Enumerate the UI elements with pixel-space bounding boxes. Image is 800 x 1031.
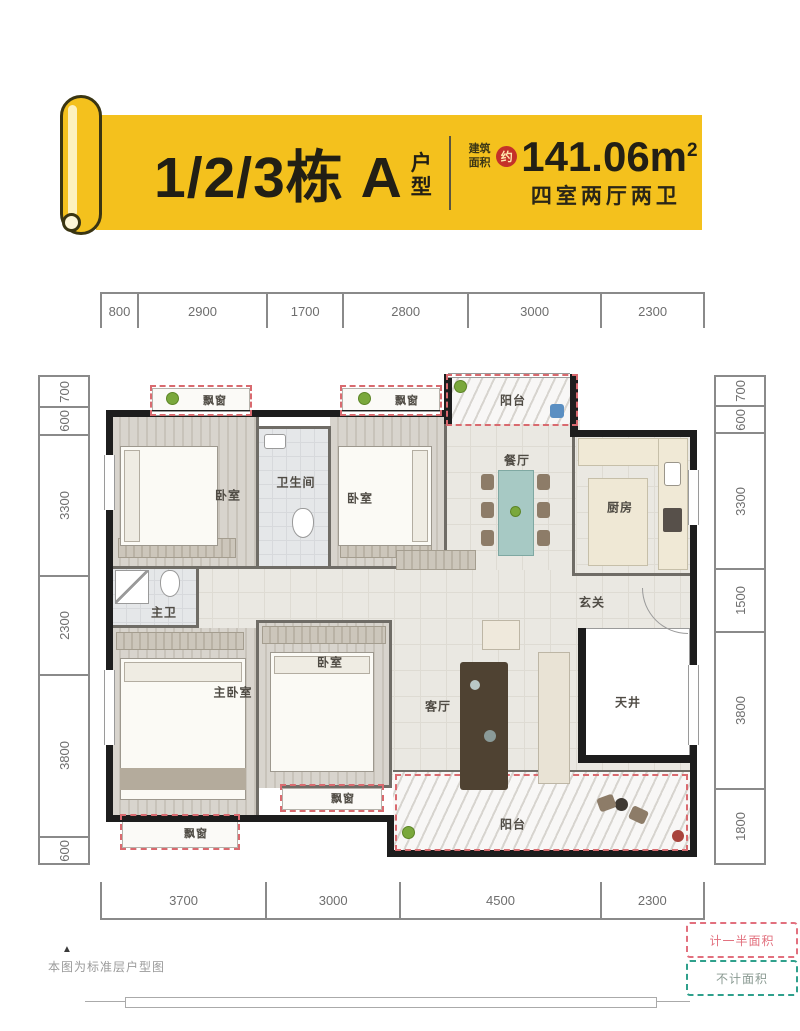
bay2-plant — [358, 392, 371, 405]
area-value: 141.06m2 — [521, 136, 697, 178]
dim-right-5: 3800 — [716, 631, 764, 788]
wall-masterbath-right — [196, 566, 199, 628]
wardrobe-mid — [262, 626, 386, 644]
label-bay2: 飘窗 — [395, 392, 419, 408]
wall-kitchen-bottom — [572, 573, 697, 576]
legend-half-area: 计一半面积 — [686, 922, 798, 958]
wall-bedroomTL-bath — [256, 414, 259, 566]
kitchen-counter-right — [658, 438, 688, 570]
dining-chair-1 — [481, 474, 494, 490]
wall-bedroomMid-right — [389, 620, 392, 788]
label-bedroom-top-left: 卧室 — [215, 487, 241, 504]
dining-chair-5 — [537, 502, 550, 518]
approx-badge: 约 — [496, 146, 517, 167]
dim-top-1: 800 — [100, 294, 139, 328]
living-rug-decor-1 — [470, 680, 480, 690]
kitchen-stove — [663, 508, 682, 532]
kitchen-island — [588, 478, 648, 566]
wall-bottom-step — [387, 815, 394, 857]
area-block: 建筑面积 约 141.06m2 四室两厅两卫 — [467, 136, 698, 210]
living-sofa — [538, 652, 570, 784]
dim-right-1: 700 — [716, 375, 764, 405]
wall-bath-bedroomTM — [328, 428, 331, 566]
dining-chair-4 — [537, 474, 550, 490]
wall-kitchen-top — [570, 430, 697, 437]
label-balcony-bottom: 阳台 — [500, 816, 526, 833]
dimension-column-left: 700 600 3300 2300 3800 600 — [38, 375, 90, 865]
dimension-column-right: 700 600 3300 1500 3800 1800 — [714, 375, 766, 865]
shower-master-bath — [115, 570, 149, 604]
dim-top-5: 3000 — [469, 294, 602, 328]
pillow-top-left — [124, 450, 140, 542]
bay1-plant — [166, 392, 179, 405]
dining-chair-2 — [481, 502, 494, 518]
dim-right-6: 1800 — [716, 788, 764, 865]
title-banner: 1/2/3栋 A 户型 建筑面积 约 141.06m2 四室两厅两卫 — [60, 95, 705, 243]
dim-top-3: 1700 — [268, 294, 344, 328]
wall-kitchen-left — [572, 434, 575, 575]
label-balcony-top: 阳台 — [500, 392, 526, 409]
window-kitchen — [688, 470, 699, 525]
kitchen-sink — [664, 462, 681, 486]
wardrobe-hall — [396, 550, 476, 570]
dim-bottom-3: 4500 — [401, 882, 601, 918]
window-lightwell — [688, 665, 699, 745]
area-superscript: 2 — [687, 140, 698, 161]
label-lightwell: 天井 — [615, 694, 641, 711]
dim-left-2: 600 — [40, 406, 88, 433]
dim-left-5: 3800 — [40, 674, 88, 836]
building-title: 1/2/3栋 A — [154, 132, 403, 214]
wall-masterbed-right — [256, 622, 259, 818]
half-area-outline-bay3 — [120, 814, 240, 850]
living-armchair — [482, 620, 520, 650]
wall-bedroomTM-dining — [444, 414, 447, 569]
pillow-top-mid — [412, 450, 428, 542]
dim-bottom-4: 2300 — [602, 882, 705, 918]
label-dining: 餐厅 — [504, 452, 530, 469]
banner-background: 1/2/3栋 A 户型 建筑面积 约 141.06m2 四室两厅两卫 — [96, 115, 702, 230]
wall-bottom-right — [387, 850, 697, 857]
wardrobe-master — [116, 632, 244, 650]
balcony-flower-pot — [672, 830, 684, 842]
wall-bath-top — [256, 426, 331, 429]
label-bay4: 飘窗 — [331, 790, 355, 806]
legend-no-area: 不计面积 — [686, 960, 798, 996]
floorplan-poster: 1/2/3栋 A 户型 建筑面积 约 141.06m2 四室两厅两卫 800 2… — [0, 0, 800, 1031]
window-master-bedroom — [104, 670, 115, 745]
bottom-rule-bar — [125, 997, 657, 1008]
dim-top-6: 2300 — [602, 294, 705, 328]
balcony-top-basin — [550, 404, 564, 418]
wall-bedroomMid-top — [256, 620, 392, 623]
label-master-bath: 主卫 — [151, 604, 177, 621]
unit-type-label: 户型 — [411, 152, 435, 198]
label-bathroom: 卫生间 — [276, 474, 315, 491]
dim-left-3: 3300 — [40, 434, 88, 575]
dim-top-2: 2900 — [139, 294, 268, 328]
dim-left-1: 700 — [40, 375, 88, 406]
banner-divider — [449, 136, 451, 210]
label-bedroom-top-mid: 卧室 — [347, 490, 373, 507]
toilet-bathroom — [292, 508, 314, 538]
wall-corridor-top — [106, 566, 446, 569]
dim-top-4: 2800 — [344, 294, 469, 328]
label-master-bedroom: 主卧室 — [213, 684, 252, 701]
footnote-triangle-icon: ▲ — [62, 944, 72, 955]
living-rug — [460, 662, 508, 790]
window-bedroom-top-left — [104, 455, 115, 510]
dim-left-6: 600 — [40, 836, 88, 865]
dim-left-4: 2300 — [40, 575, 88, 674]
label-kitchen: 厨房 — [607, 499, 633, 516]
wall-lightwell-bottom — [578, 755, 697, 763]
wall-lightwell-left — [578, 628, 586, 762]
dimension-row-bottom: 3700 3000 4500 2300 — [100, 882, 705, 920]
dimension-row-top: 800 2900 1700 2800 3000 2300 — [100, 292, 705, 328]
dining-chair-6 — [537, 530, 550, 546]
label-bay3: 飘窗 — [184, 825, 208, 841]
pillow-master — [124, 662, 242, 682]
dim-bottom-1: 3700 — [100, 882, 267, 918]
balcony-top-plant — [454, 380, 467, 393]
toilet-master-bath — [160, 570, 180, 597]
scroll-curl-icon — [62, 213, 81, 232]
footnote-text: 本图为标准层户型图 — [48, 958, 165, 975]
area-caption: 建筑面积 — [467, 143, 492, 169]
throw-master — [120, 768, 246, 790]
floor-plan: 卧室 卫生间 卧室 阳台 餐厅 厨房 玄关 主卫 主卧室 卧室 客厅 天井 阳台… — [100, 370, 705, 870]
label-bedroom-mid: 卧室 — [317, 654, 343, 671]
dining-chair-3 — [481, 530, 494, 546]
dim-bottom-2: 3000 — [267, 882, 401, 918]
label-foyer: 玄关 — [579, 594, 605, 611]
wall-masterbath-bottom — [106, 625, 199, 628]
balcony-table — [615, 798, 628, 811]
dining-table-plant — [510, 506, 521, 517]
label-bay1: 飘窗 — [203, 392, 227, 408]
living-rug-decor-2 — [484, 730, 496, 742]
half-area-outline-bay2 — [340, 385, 442, 416]
label-living: 客厅 — [425, 698, 451, 715]
dim-right-4: 1500 — [716, 568, 764, 631]
basin-bathroom — [264, 434, 286, 449]
dim-right-3: 3300 — [716, 432, 764, 568]
balcony-plant — [402, 826, 415, 839]
dim-right-2: 600 — [716, 405, 764, 431]
room-count-label: 四室两厅两卫 — [531, 180, 698, 210]
half-area-outline-bay1 — [150, 385, 252, 416]
